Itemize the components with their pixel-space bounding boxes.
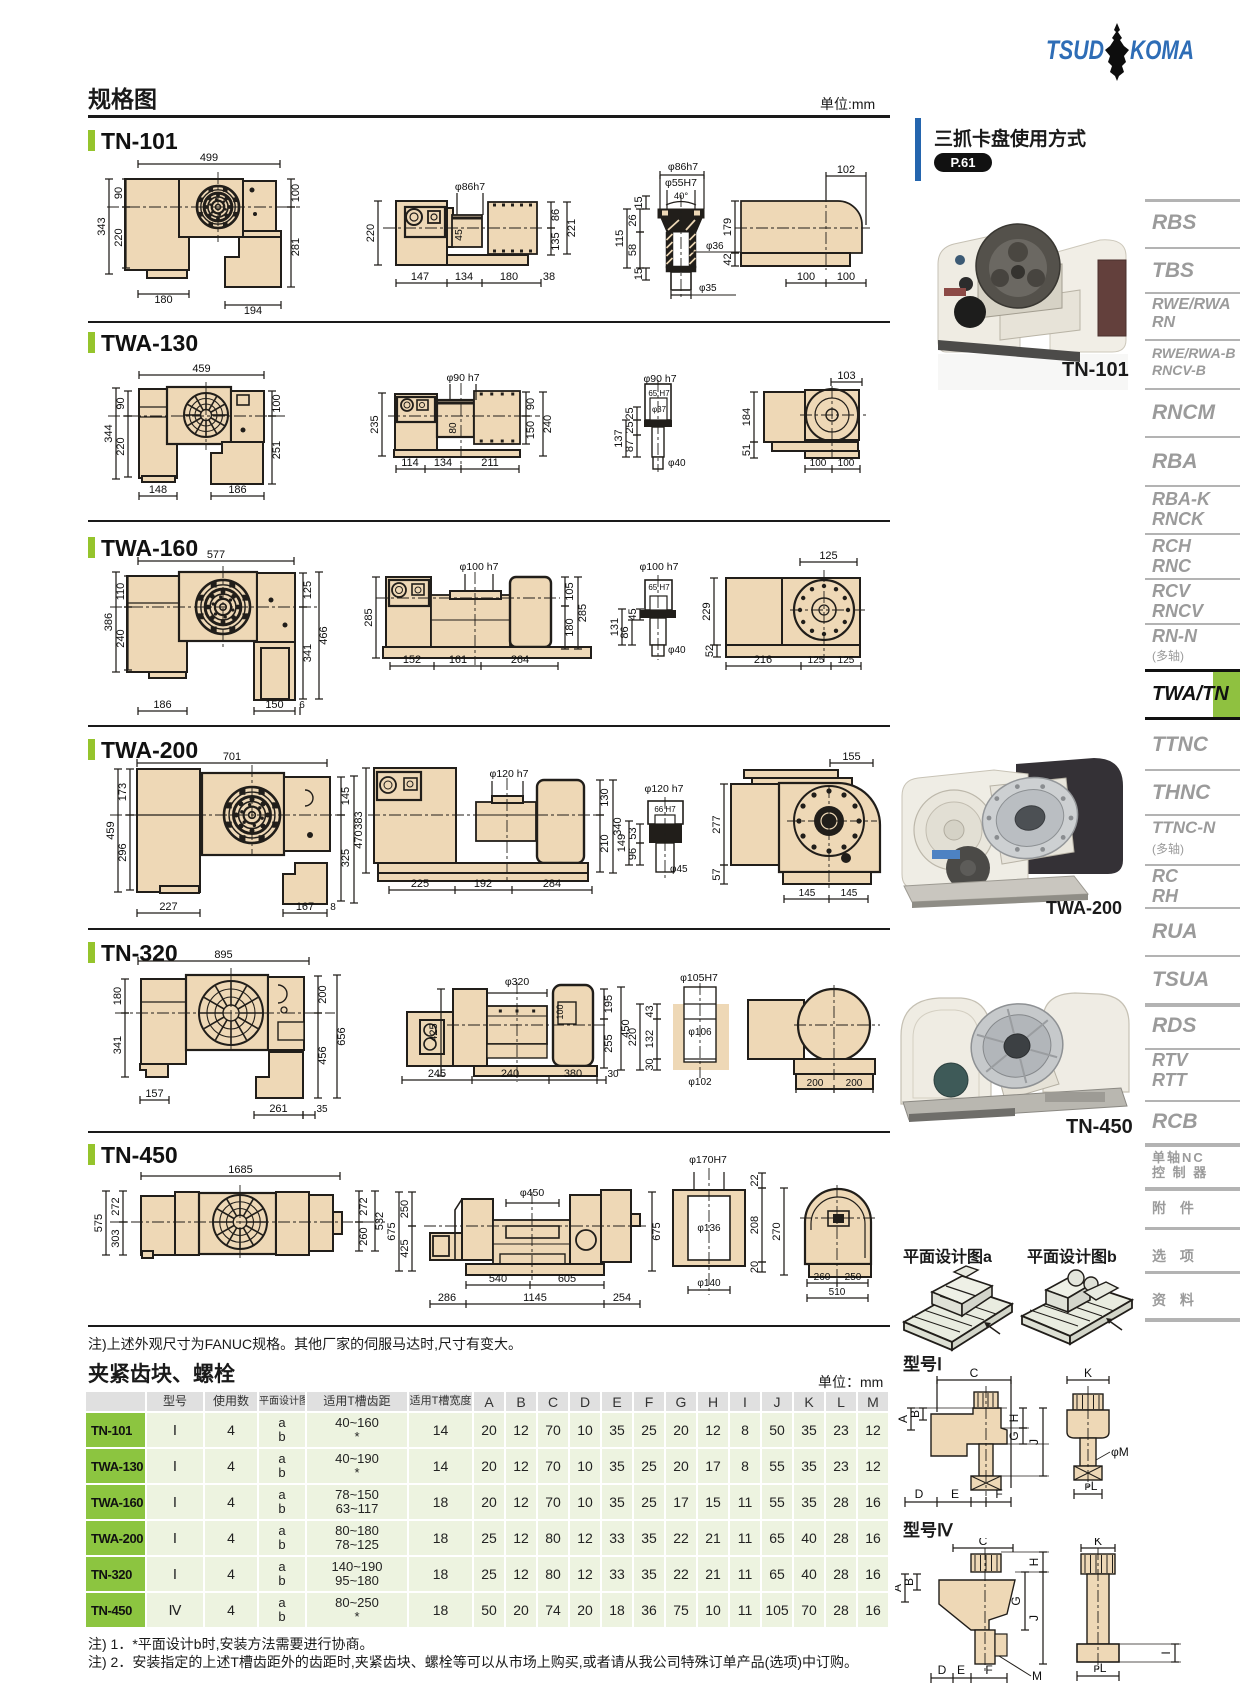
svg-text:E: E [957, 1663, 965, 1677]
svg-text:G: G [1009, 1596, 1023, 1605]
svg-text:286: 286 [438, 1292, 456, 1304]
svg-text:H: H [1027, 1558, 1041, 1567]
svg-text:208: 208 [749, 1216, 761, 1234]
svg-text:303: 303 [110, 1229, 122, 1247]
svg-text:510: 510 [829, 1287, 846, 1298]
svg-text:250: 250 [399, 1200, 411, 1218]
svg-text:1685: 1685 [228, 1164, 252, 1176]
svg-text:22: 22 [749, 1174, 761, 1186]
svg-text:φ170H7: φ170H7 [689, 1154, 727, 1166]
svg-text:B: B [902, 1578, 916, 1586]
svg-text:φ450: φ450 [520, 1187, 544, 1199]
svg-text:I: I [1159, 1651, 1173, 1654]
svg-text:E: E [951, 1487, 959, 1501]
svg-text:KOMA: KOMA [1130, 35, 1194, 65]
svg-text:TSUD: TSUD [1046, 35, 1104, 65]
svg-text:254: 254 [613, 1292, 631, 1304]
svg-text:φM: φM [1111, 1445, 1129, 1459]
svg-text:605: 605 [558, 1273, 576, 1285]
svg-text:ᴘL: ᴘL [1085, 1479, 1098, 1493]
svg-text:D: D [938, 1663, 947, 1677]
svg-text:M: M [1032, 1669, 1042, 1683]
svg-text:F: F [995, 1487, 1002, 1501]
svg-text:J: J [1027, 1615, 1041, 1621]
svg-text:C: C [970, 1368, 979, 1380]
svg-text:1145: 1145 [523, 1292, 547, 1304]
svg-text:425: 425 [399, 1239, 411, 1257]
svg-text:272: 272 [358, 1197, 370, 1215]
svg-text:675: 675 [386, 1222, 398, 1240]
svg-text:575: 575 [93, 1214, 105, 1232]
svg-text:H: H [1007, 1414, 1021, 1423]
svg-text:260: 260 [814, 1272, 831, 1283]
svg-text:250: 250 [845, 1272, 862, 1283]
svg-text:K: K [1084, 1368, 1092, 1380]
svg-text:272: 272 [110, 1197, 122, 1215]
svg-text:260: 260 [358, 1227, 370, 1245]
svg-text:B: B [908, 1410, 922, 1418]
svg-text:D: D [915, 1487, 924, 1501]
svg-text:G: G [1007, 1431, 1021, 1440]
svg-text:20: 20 [749, 1261, 761, 1273]
svg-text:ᴘL: ᴘL [1094, 1661, 1107, 1675]
svg-text:270: 270 [771, 1222, 783, 1240]
svg-text:532: 532 [374, 1212, 386, 1230]
svg-text:K: K [1094, 1538, 1102, 1548]
svg-text:540: 540 [489, 1273, 507, 1285]
svg-text:C: C [979, 1538, 988, 1548]
svg-text:F: F [985, 1663, 992, 1677]
svg-text:675: 675 [651, 1222, 663, 1240]
